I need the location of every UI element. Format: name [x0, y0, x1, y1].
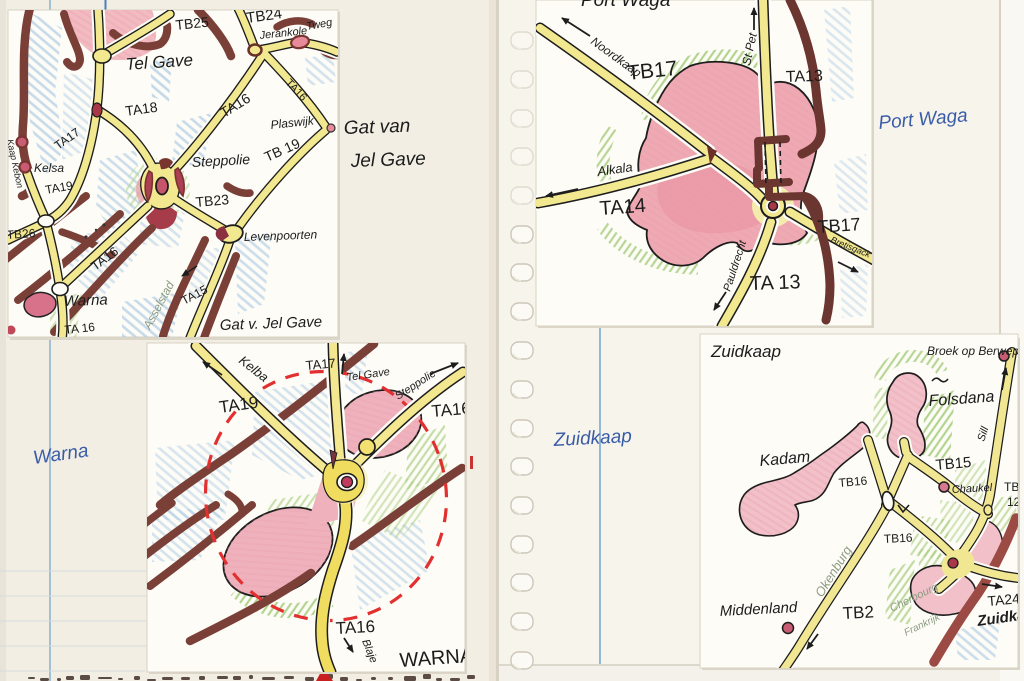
svg-text:TB23: TB23 [195, 191, 230, 210]
svg-text:TA16: TA16 [335, 617, 375, 638]
svg-text:Port Waga: Port Waga [581, 0, 670, 11]
svg-text:TA14: TA14 [599, 195, 647, 220]
svg-text:Gat van: Gat van [343, 116, 410, 139]
svg-text:TB15: TB15 [935, 454, 972, 474]
svg-text:Zuidkaap: Zuidkaap [552, 426, 632, 451]
svg-text:Jel Gave: Jel Gave [349, 148, 426, 172]
svg-text:Steppolie: Steppolie [191, 151, 250, 170]
svg-text:TB17: TB17 [817, 214, 861, 237]
svg-text:TA 13: TA 13 [749, 271, 801, 295]
svg-text:Warna: Warna [64, 291, 108, 310]
svg-text:TB2: TB2 [842, 602, 874, 623]
svg-text:Gat v. Jel Gave: Gat v. Jel Gave [220, 313, 323, 334]
svg-text:TB16: TB16 [883, 530, 913, 545]
svg-text:Kelsa: Kelsa [34, 161, 64, 175]
svg-text:Levenpoorten: Levenpoorten [244, 227, 318, 244]
svg-text:TA24: TA24 [987, 590, 1021, 609]
svg-text:Broek op Berwep: Broek op Berwep [927, 344, 1019, 358]
svg-text:TB16: TB16 [838, 474, 868, 490]
svg-text:TB: TB [1004, 480, 1019, 494]
svg-text:TB26: TB26 [6, 226, 36, 242]
svg-text:Chaukel: Chaukel [952, 482, 993, 496]
svg-text:TA17: TA17 [305, 355, 336, 373]
svg-text:TA13: TA13 [786, 68, 824, 86]
svg-text:Zuidkaap: Zuidkaap [710, 342, 781, 361]
